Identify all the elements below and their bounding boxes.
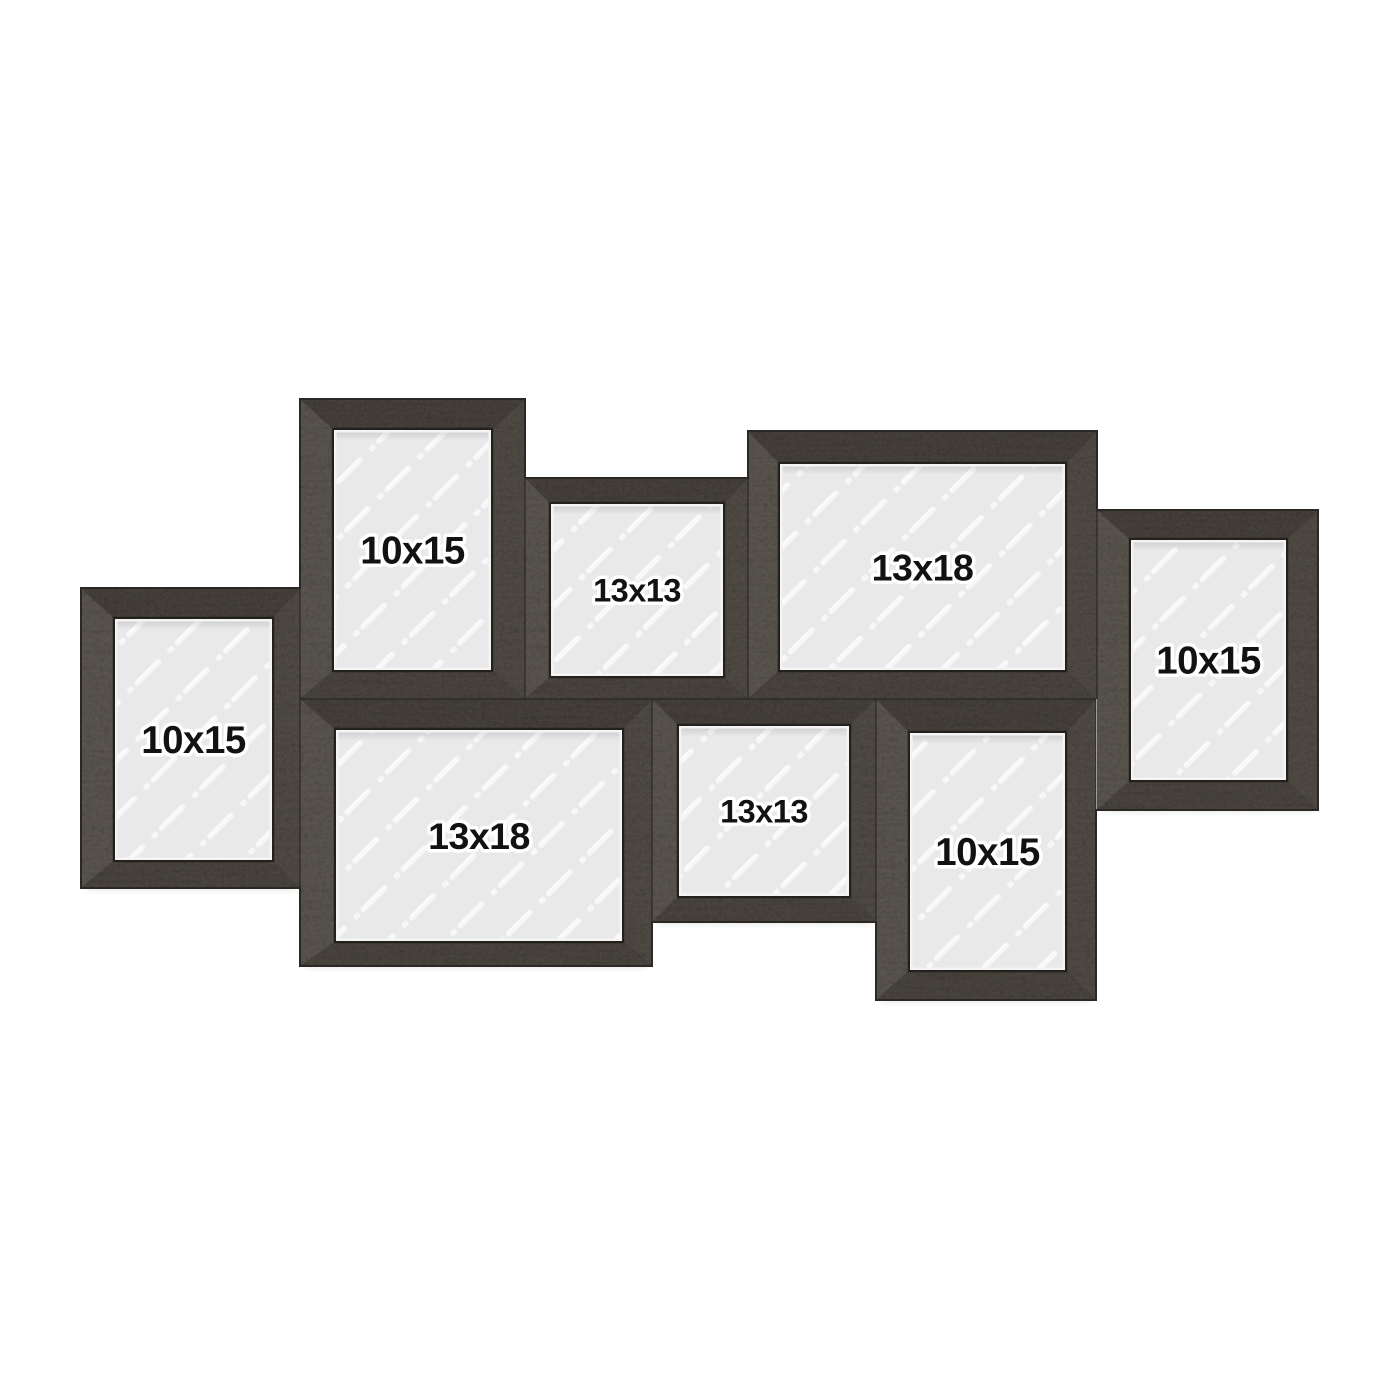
svg-text:13x18: 13x18: [428, 815, 530, 857]
svg-text:10x15: 10x15: [935, 831, 1040, 874]
svg-text:10x15: 10x15: [141, 719, 246, 762]
svg-text:10x15: 10x15: [360, 530, 465, 573]
svg-text:10x15: 10x15: [1156, 640, 1261, 683]
svg-text:13x18: 13x18: [872, 546, 974, 588]
svg-text:13x13: 13x13: [720, 794, 808, 830]
svg-text:13x13: 13x13: [593, 573, 681, 609]
